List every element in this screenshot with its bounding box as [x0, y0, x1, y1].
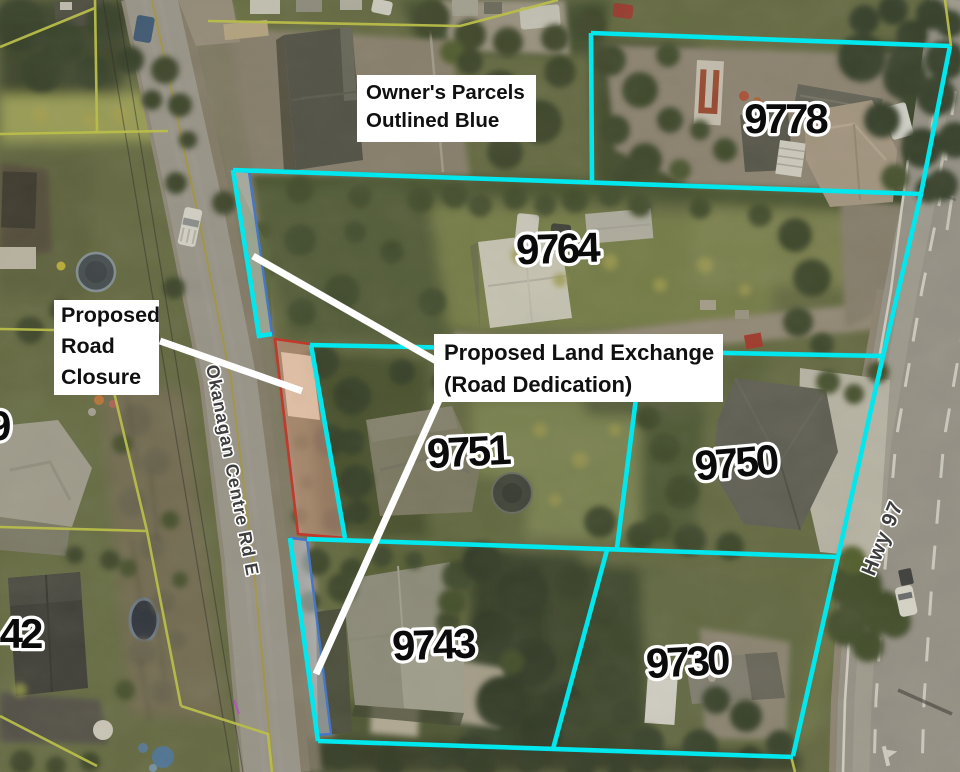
- svg-text:Closure: Closure: [61, 365, 141, 389]
- svg-text:9750: 9750: [693, 435, 780, 489]
- svg-text:Proposed Land Exchange: Proposed Land Exchange: [444, 340, 714, 365]
- svg-text:Outlined Blue: Outlined Blue: [366, 109, 499, 132]
- svg-text:9764: 9764: [515, 223, 602, 273]
- svg-text:Proposed: Proposed: [61, 303, 160, 327]
- svg-text:9743: 9743: [391, 620, 476, 670]
- svg-text:9751: 9751: [426, 426, 512, 477]
- svg-text:Road: Road: [61, 334, 115, 358]
- svg-text:9730: 9730: [645, 636, 730, 687]
- svg-text:9778: 9778: [744, 95, 828, 142]
- svg-text:Owner's Parcels: Owner's Parcels: [366, 81, 525, 104]
- svg-text:42: 42: [0, 610, 42, 657]
- svg-text:(Road Dedication): (Road Dedication): [444, 372, 632, 397]
